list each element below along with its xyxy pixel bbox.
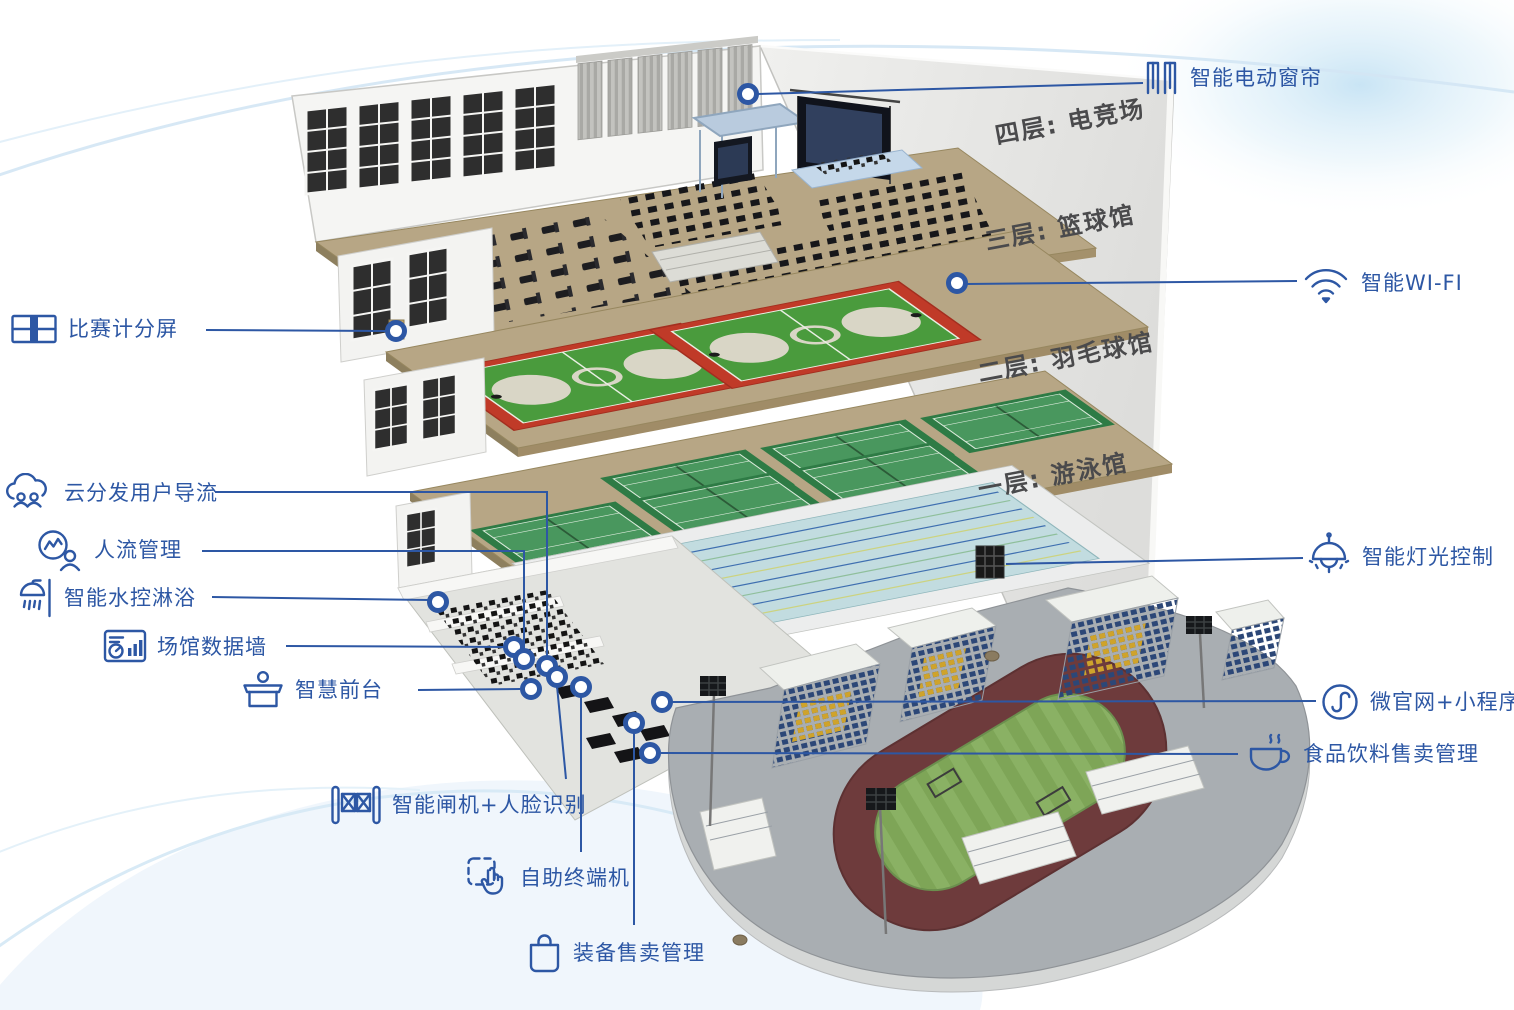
shopping-bag-icon [527, 932, 563, 974]
pole-base [985, 651, 999, 661]
callout-cloud: 云分发用户导流 [2, 473, 218, 513]
callout-miniprogram: 微官网+小程序 [1320, 682, 1514, 722]
reception-desk-icon [241, 670, 285, 710]
turnstile-gate-icon [330, 783, 382, 827]
shower-icon [16, 578, 54, 618]
line-miniprogram [672, 701, 1316, 702]
callout-label: 微官网+小程序 [1370, 692, 1514, 713]
left-wall-1f [396, 492, 472, 590]
wifi-icon [1301, 262, 1351, 304]
touch-kiosk-icon [466, 856, 510, 900]
callout-shower: 智能水控淋浴 [16, 578, 196, 618]
window-icon [514, 84, 556, 172]
cloud-users-icon [2, 473, 54, 513]
callout-terminal: 自助终端机 [466, 856, 630, 900]
callout-data-wall: 场馆数据墙 [103, 629, 267, 665]
line-scoreboard [206, 330, 387, 331]
scoreboard-icon [10, 311, 58, 347]
callout-label: 智慧前台 [295, 680, 383, 701]
line-shower [212, 597, 429, 600]
line-food [661, 753, 1238, 754]
callout-label: 云分发用户导流 [64, 483, 218, 504]
callout-label: 智能灯光控制 [1362, 547, 1494, 568]
window-icon [462, 90, 504, 178]
window-icon [410, 95, 452, 183]
line-data-wall [286, 646, 506, 647]
callout-label: 食品饮料售卖管理 [1303, 744, 1479, 765]
line-front-desk [418, 689, 520, 690]
callout-wifi: 智能WI-FI [1301, 262, 1463, 304]
pole-base [733, 935, 747, 945]
callout-light: 智能灯光控制 [1306, 532, 1494, 582]
video-wall [714, 136, 752, 186]
coffee-cup-icon [1243, 731, 1293, 777]
pendant-lamp-icon [1306, 532, 1352, 582]
callout-equipment: 装备售卖管理 [527, 932, 705, 974]
callout-scoreboard: 比赛计分屏 [10, 311, 178, 347]
flow-chart-person-icon [36, 528, 84, 572]
callout-label: 智能闸机+人脸识别 [392, 795, 587, 816]
building-illustration [0, 0, 1514, 1010]
callout-label: 智能WI-FI [1361, 273, 1463, 294]
callout-label: 装备售卖管理 [573, 943, 705, 964]
callout-gate: 智能闸机+人脸识别 [330, 783, 587, 827]
callout-curtain: 智能电动窗帘 [1144, 60, 1322, 96]
callout-label: 人流管理 [94, 540, 182, 561]
callout-label: 场馆数据墙 [157, 637, 267, 658]
callout-label: 比赛计分屏 [68, 319, 178, 340]
callout-front-desk: 智慧前台 [241, 670, 383, 710]
curtain-icon [1144, 60, 1180, 96]
left-wall-2f [364, 358, 486, 476]
data-dashboard-icon [103, 629, 147, 665]
callout-food: 食品饮料售卖管理 [1243, 731, 1479, 777]
wall-light-panel [976, 546, 1004, 578]
smart-venue-diagram: 四层: 电竞场 三层: 篮球馆 二层: 羽毛球馆 一层: 游泳馆 智能电动窗帘 … [0, 0, 1514, 1010]
miniprogram-icon [1320, 682, 1360, 722]
callout-label: 智能水控淋浴 [64, 588, 196, 609]
window-icon [306, 106, 348, 194]
window-icon [358, 101, 400, 189]
callout-label: 自助终端机 [520, 868, 630, 889]
callout-people-flow: 人流管理 [36, 528, 182, 572]
callout-label: 智能电动窗帘 [1190, 68, 1322, 89]
